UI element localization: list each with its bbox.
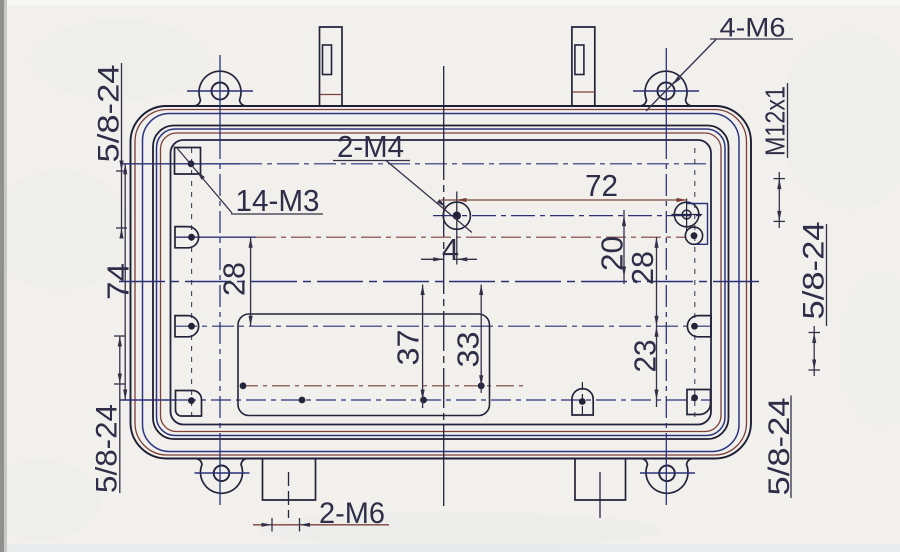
svg-text:28: 28 (625, 251, 660, 285)
svg-text:72: 72 (585, 168, 618, 203)
svg-text:5/8-24: 5/8-24 (763, 398, 796, 496)
svg-text:5/8-24: 5/8-24 (798, 222, 831, 320)
svg-text:4-M6: 4-M6 (720, 13, 786, 43)
svg-text:5/8-24: 5/8-24 (93, 65, 126, 163)
svg-text:M12x1: M12x1 (760, 86, 791, 156)
svg-text:23: 23 (628, 340, 663, 373)
svg-text:37: 37 (391, 330, 426, 366)
svg-text:2-M4: 2-M4 (337, 129, 404, 164)
svg-text:4: 4 (442, 232, 459, 267)
svg-text:33: 33 (451, 332, 486, 368)
svg-text:2-M6: 2-M6 (319, 497, 385, 530)
svg-text:74: 74 (101, 263, 136, 300)
svg-text:5/8-24: 5/8-24 (91, 404, 124, 493)
svg-text:28: 28 (217, 262, 252, 296)
svg-text:14-M3: 14-M3 (236, 183, 320, 218)
